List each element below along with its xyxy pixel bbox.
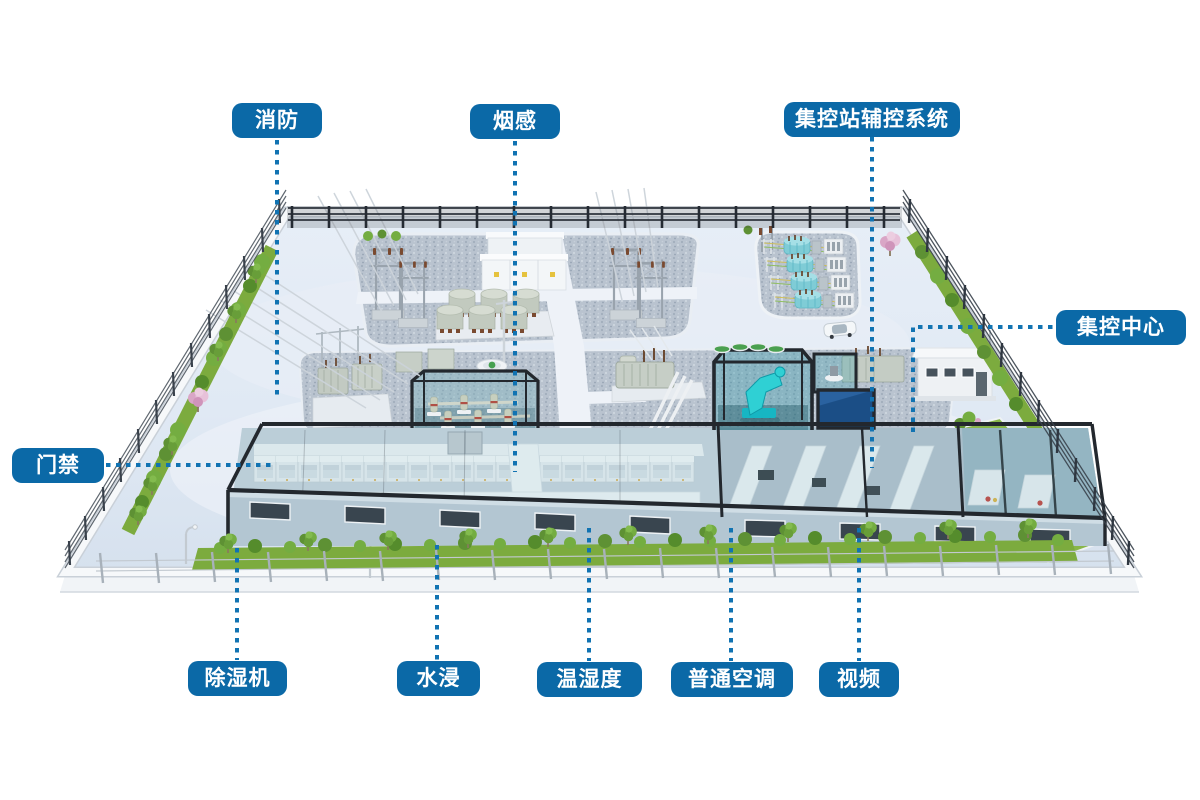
top-fence — [287, 206, 902, 228]
upper-switchyard — [354, 232, 698, 346]
tag-video[interactable]: 视频 — [819, 662, 899, 697]
teal-machine-room — [714, 344, 812, 431]
aux-transformer-yard — [756, 226, 860, 318]
tag-normal-ac[interactable]: 普通空调 — [671, 662, 793, 697]
tag-water-leak[interactable]: 水浸 — [397, 661, 480, 696]
tag-temp-humidity[interactable]: 温湿度 — [537, 662, 642, 697]
tag-dehumidifier[interactable]: 除湿机 — [188, 661, 287, 696]
tag-smoke-detector[interactable]: 烟感 — [470, 104, 560, 139]
tag-aux-control-system[interactable]: 集控站辅控系统 — [784, 102, 960, 137]
yard-control-cabinets — [480, 232, 568, 290]
instrument-room — [814, 354, 856, 392]
tag-fire-protection[interactable]: 消防 — [232, 103, 322, 138]
substation-overview-page: 消防 烟感 集控站辅控系统 集控中心 门禁 除湿机 水浸 温湿度 普通空调 视频 — [0, 0, 1200, 800]
capacitor-bank — [436, 289, 554, 340]
tag-control-center[interactable]: 集控中心 — [1056, 310, 1186, 345]
tag-access-control[interactable]: 门禁 — [12, 448, 104, 483]
